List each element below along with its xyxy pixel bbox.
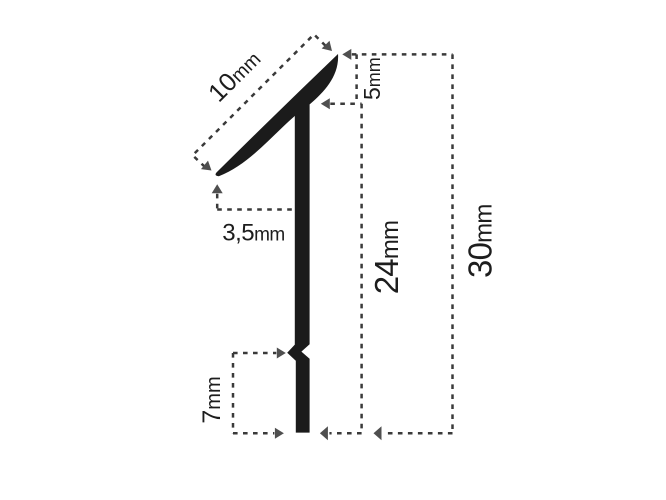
svg-text:30mm: 30mm (462, 204, 499, 278)
svg-text:3,5mm: 3,5mm (222, 219, 285, 246)
svg-text:10mm: 10mm (203, 45, 266, 108)
svg-text:24mm: 24mm (368, 221, 405, 295)
svg-text:7mm: 7mm (198, 376, 226, 423)
svg-text:5mm: 5mm (359, 57, 385, 100)
